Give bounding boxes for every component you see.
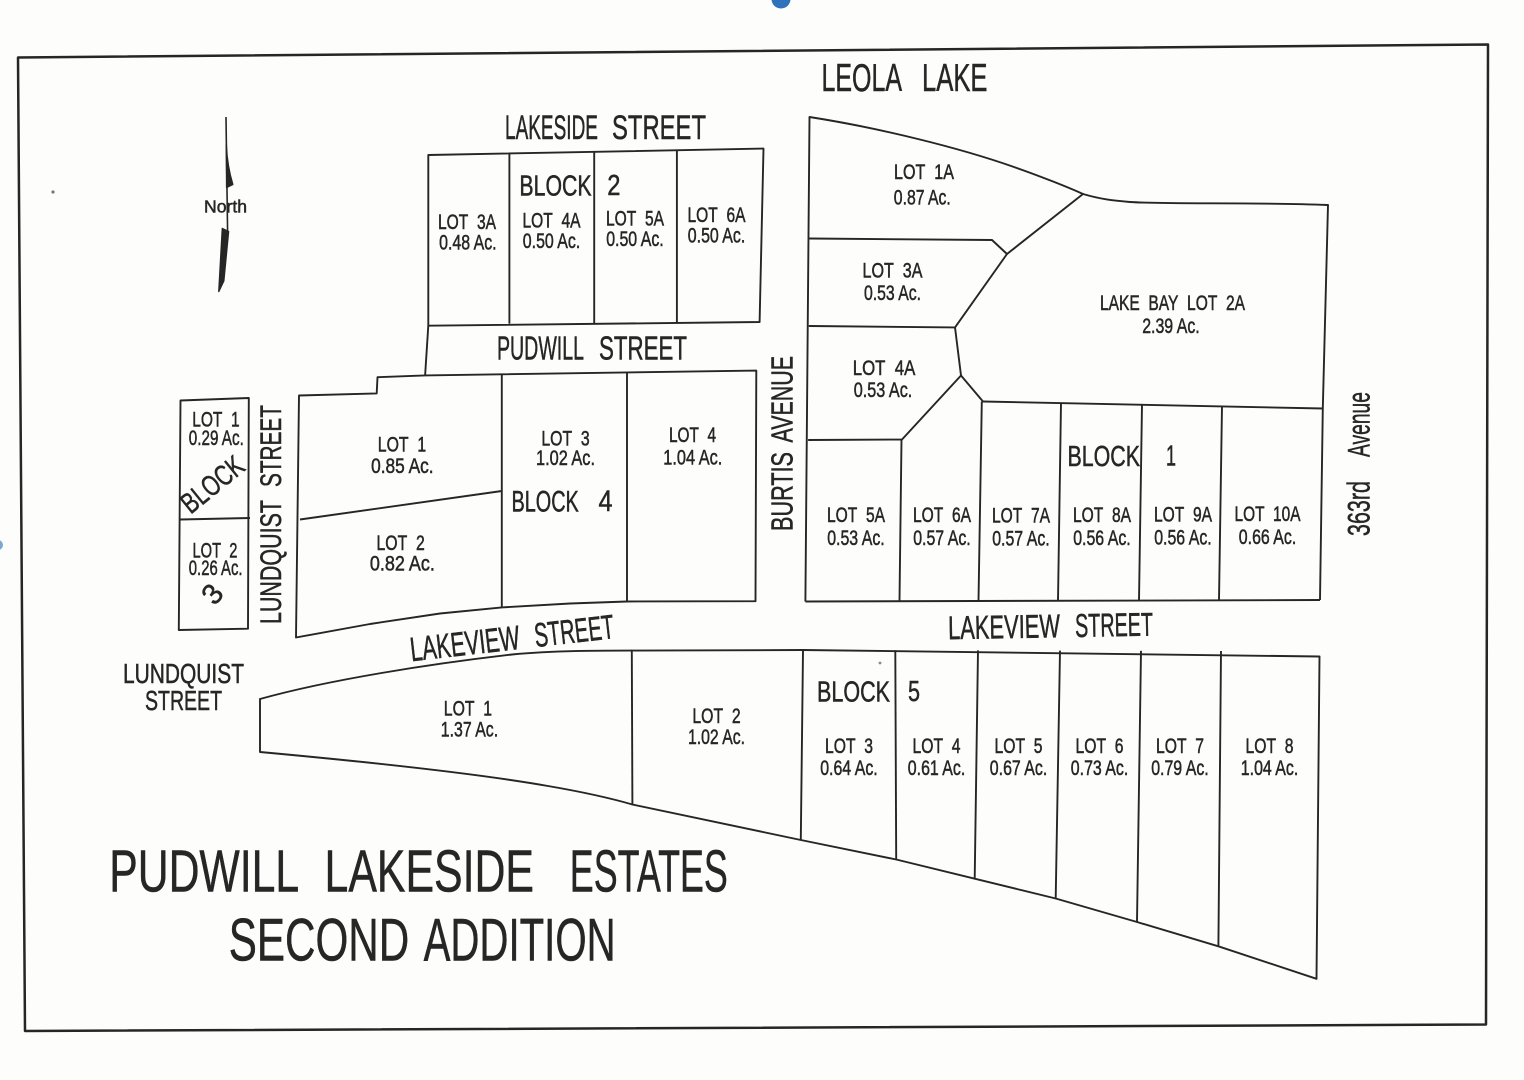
svg-text:0.57 Ac.: 0.57 Ac. [992, 528, 1049, 551]
svg-text:BLOCK: BLOCK [519, 171, 592, 203]
svg-text:LOT 3: LOT 3 [825, 735, 873, 758]
svg-text:1.04 Ac.: 1.04 Ac. [1241, 757, 1299, 780]
svg-text:PUDWILL: PUDWILL [109, 839, 299, 905]
svg-text:LOT 7: LOT 7 [1156, 735, 1204, 758]
svg-text:0.79 Ac.: 0.79 Ac. [1151, 757, 1209, 780]
svg-text:0.53 Ac.: 0.53 Ac. [854, 379, 913, 402]
svg-text:0.56 Ac.: 0.56 Ac. [1154, 527, 1212, 550]
svg-text:LOT 8A: LOT 8A [1073, 504, 1131, 527]
svg-text:BLOCK: BLOCK [817, 677, 890, 709]
svg-text:STREET: STREET [1075, 606, 1154, 644]
svg-text:STREET: STREET [255, 405, 288, 487]
svg-text:LAKE: LAKE [922, 57, 988, 100]
svg-text:0.57 Ac.: 0.57 Ac. [913, 527, 971, 550]
svg-text:0.85 Ac.: 0.85 Ac. [371, 455, 434, 478]
svg-text:AVENUE: AVENUE [765, 356, 800, 443]
svg-text:0.53 Ac.: 0.53 Ac. [864, 282, 921, 305]
svg-text:SECOND: SECOND [229, 907, 409, 974]
svg-text:2.39 Ac.: 2.39 Ac. [1142, 315, 1200, 338]
svg-text:0.56 Ac.: 0.56 Ac. [1073, 527, 1131, 550]
svg-text:PUDWILL: PUDWILL [497, 330, 584, 367]
svg-text:LOT 7A: LOT 7A [992, 505, 1050, 528]
svg-text:STREET: STREET [145, 685, 222, 716]
svg-text:BLOCK: BLOCK [512, 486, 579, 519]
svg-text:2: 2 [607, 170, 620, 202]
svg-text:LOT 9A: LOT 9A [1154, 504, 1212, 527]
svg-text:0.61 Ac.: 0.61 Ac. [908, 757, 966, 780]
svg-text:0.53 Ac.: 0.53 Ac. [827, 527, 885, 550]
svg-text:ADDITION: ADDITION [424, 907, 616, 974]
svg-text:LOT 1: LOT 1 [444, 698, 492, 721]
svg-text:LAKEVIEW: LAKEVIEW [948, 607, 1061, 646]
svg-text:0.87 Ac.: 0.87 Ac. [894, 187, 951, 210]
svg-text:4: 4 [599, 485, 613, 518]
svg-text:1.04 Ac.: 1.04 Ac. [663, 447, 722, 470]
svg-text:0.73 Ac.: 0.73 Ac. [1071, 757, 1129, 780]
svg-text:0.67 Ac.: 0.67 Ac. [990, 757, 1048, 780]
svg-text:1.37 Ac.: 1.37 Ac. [441, 719, 498, 742]
svg-text:0.50 Ac.: 0.50 Ac. [606, 228, 664, 251]
svg-text:LOT 6: LOT 6 [1076, 735, 1124, 758]
svg-text:LOT 1A: LOT 1A [894, 161, 954, 184]
svg-text:LOT 5: LOT 5 [995, 735, 1043, 758]
svg-text:0.50 Ac.: 0.50 Ac. [688, 225, 746, 248]
svg-text:North: North [204, 197, 247, 217]
svg-text:LOT 3A: LOT 3A [863, 260, 923, 283]
svg-text:5: 5 [908, 676, 920, 708]
svg-text:LEOLA: LEOLA [822, 57, 903, 100]
svg-text:LOT 1: LOT 1 [378, 433, 426, 456]
svg-text:STREET: STREET [612, 109, 706, 147]
svg-text:LAKE BAY LOT 2A: LAKE BAY LOT 2A [1100, 292, 1245, 315]
svg-text:0.66 Ac.: 0.66 Ac. [1239, 526, 1297, 549]
svg-text:0.64 Ac.: 0.64 Ac. [820, 757, 878, 780]
svg-text:1.02 Ac.: 1.02 Ac. [536, 447, 595, 470]
svg-text:LUNDQUIST: LUNDQUIST [255, 500, 288, 624]
svg-text:1: 1 [1166, 440, 1176, 472]
svg-text:LAKESIDE: LAKESIDE [505, 109, 598, 147]
svg-text:LOT 4A: LOT 4A [853, 357, 916, 380]
svg-text:BLOCK: BLOCK [1068, 441, 1141, 473]
svg-text:0.82 Ac.: 0.82 Ac. [370, 553, 435, 576]
svg-text:LOT 4: LOT 4 [669, 424, 716, 447]
svg-text:1.02 Ac.: 1.02 Ac. [688, 726, 745, 749]
svg-text:Avenue: Avenue [1340, 392, 1376, 457]
svg-text:LOT 2: LOT 2 [692, 705, 740, 728]
svg-text:0.29 Ac.: 0.29 Ac. [189, 427, 244, 450]
svg-text:STREET: STREET [599, 330, 687, 367]
svg-text:0.50 Ac.: 0.50 Ac. [523, 230, 581, 253]
svg-text:LOT 4: LOT 4 [913, 735, 961, 758]
svg-text:363rd: 363rd [1340, 481, 1376, 536]
svg-text:LOT 6A: LOT 6A [913, 504, 971, 527]
svg-text:ESTATES: ESTATES [570, 839, 728, 905]
svg-text:LOT 10A: LOT 10A [1235, 503, 1301, 526]
svg-text:LOT 8: LOT 8 [1246, 735, 1294, 758]
svg-text:0.26 Ac.: 0.26 Ac. [189, 557, 243, 580]
svg-text:LOT 5A: LOT 5A [827, 504, 885, 527]
svg-text:BURTIS: BURTIS [765, 452, 800, 531]
svg-text:LAKESIDE: LAKESIDE [325, 839, 535, 905]
svg-text:0.48 Ac.: 0.48 Ac. [439, 232, 497, 255]
